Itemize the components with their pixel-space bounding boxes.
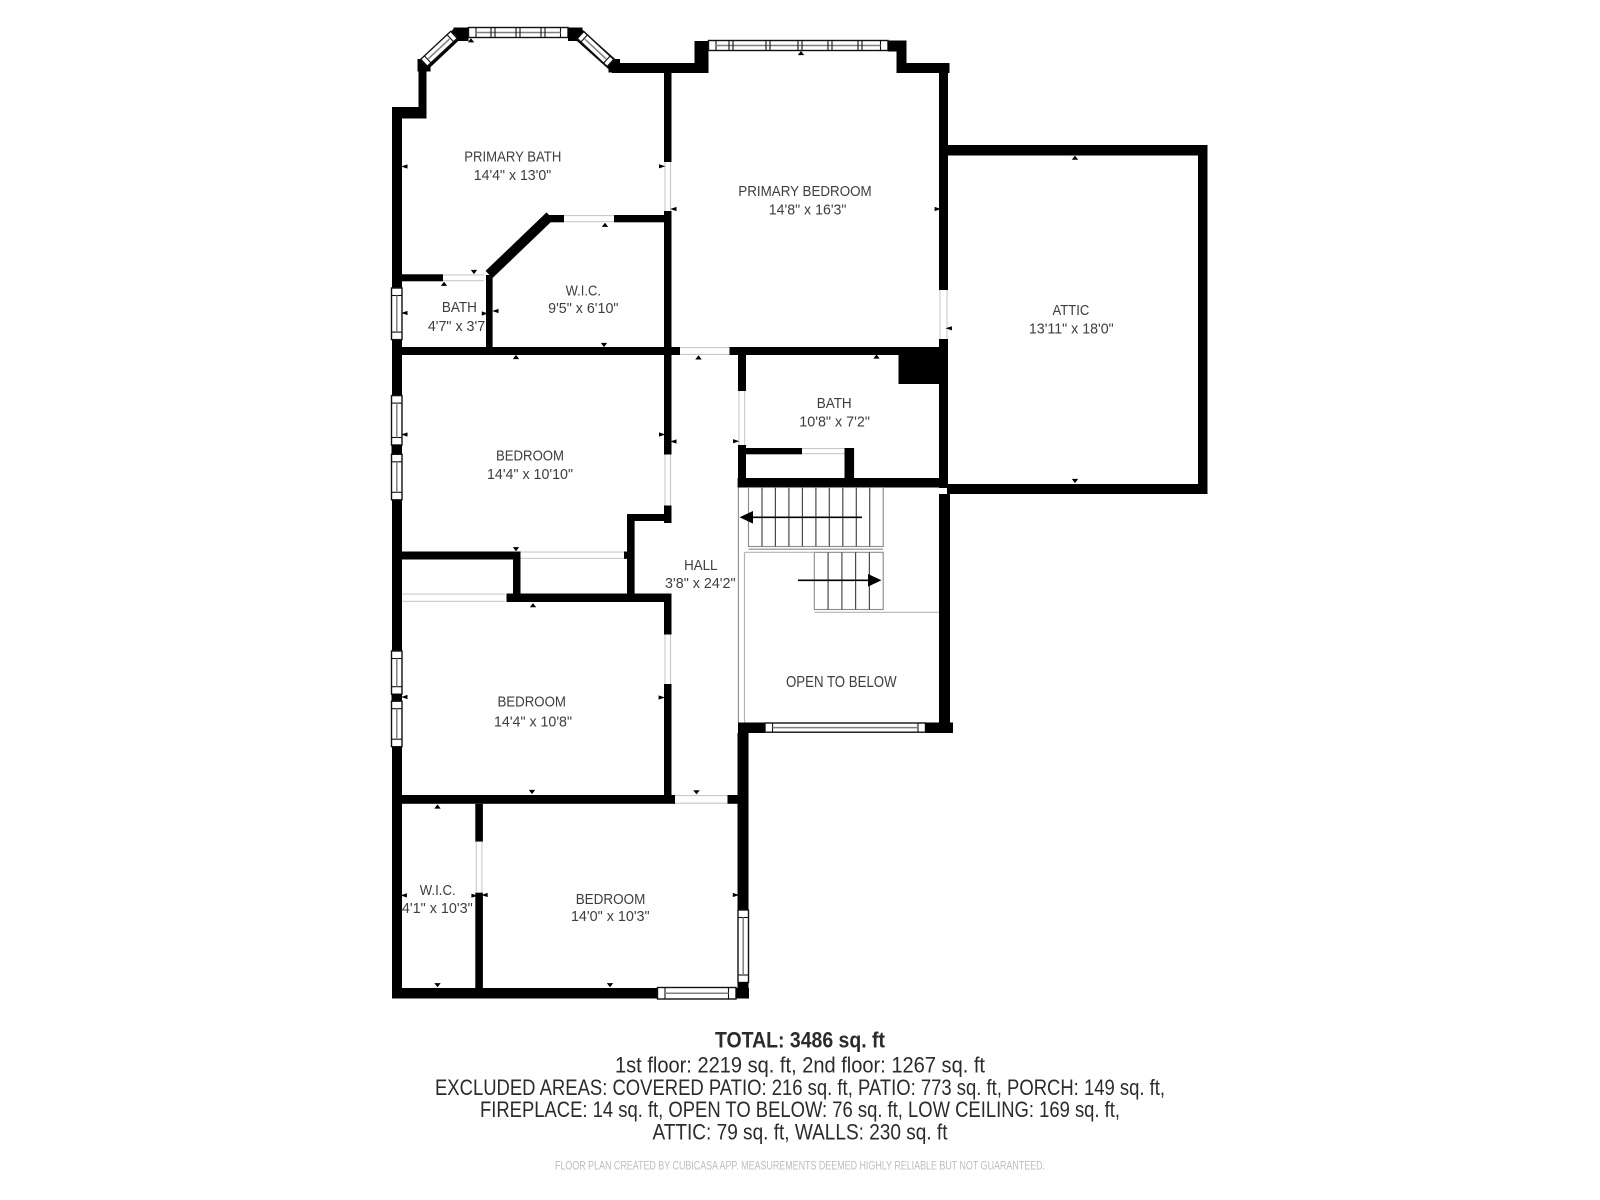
svg-text:14'4" x 10'8": 14'4" x 10'8" xyxy=(494,715,572,731)
svg-text:BATH: BATH xyxy=(442,300,477,316)
svg-text:FLOOR PLAN CREATED BY CUBICASA: FLOOR PLAN CREATED BY CUBICASA APP. MEAS… xyxy=(555,1160,1045,1172)
svg-text:OPEN TO BELOW: OPEN TO BELOW xyxy=(786,674,897,691)
svg-text:W.I.C.: W.I.C. xyxy=(420,883,456,899)
svg-text:14'0" x 10'3": 14'0" x 10'3" xyxy=(571,909,650,925)
svg-text:PRIMARY BATH: PRIMARY BATH xyxy=(464,150,561,166)
svg-text:BEDROOM: BEDROOM xyxy=(576,892,646,908)
svg-text:TOTAL: 3486 sq. ft: TOTAL: 3486 sq. ft xyxy=(715,1028,886,1053)
svg-text:3'8" x 24'2": 3'8" x 24'2" xyxy=(665,576,736,592)
svg-text:W.I.C.: W.I.C. xyxy=(566,283,601,299)
svg-text:4'1" x 10'3": 4'1" x 10'3" xyxy=(402,901,473,917)
svg-text:13'11" x 18'0": 13'11" x 18'0" xyxy=(1029,322,1114,338)
svg-text:ATTIC: 79 sq. ft, WALLS: 230 s: ATTIC: 79 sq. ft, WALLS: 230 sq. ft xyxy=(653,1120,948,1145)
svg-text:14'4" x 10'10": 14'4" x 10'10" xyxy=(487,467,573,483)
svg-text:ATTIC: ATTIC xyxy=(1053,303,1090,319)
svg-text:9'5" x 6'10": 9'5" x 6'10" xyxy=(548,301,618,317)
svg-text:14'8" x 16'3": 14'8" x 16'3" xyxy=(769,202,847,218)
svg-text:BEDROOM: BEDROOM xyxy=(497,695,566,711)
svg-text:FIREPLACE: 14 sq. ft, OPEN TO: FIREPLACE: 14 sq. ft, OPEN TO BELOW: 76 … xyxy=(480,1097,1120,1122)
svg-text:14'4" x 13'0": 14'4" x 13'0" xyxy=(474,168,552,184)
svg-text:BATH: BATH xyxy=(817,396,852,412)
svg-text:10'8" x 7'2": 10'8" x 7'2" xyxy=(799,415,870,431)
svg-text:4'7" x 3'7: 4'7" x 3'7 xyxy=(428,319,485,335)
svg-text:BEDROOM: BEDROOM xyxy=(496,449,564,465)
svg-text:HALL: HALL xyxy=(684,558,717,574)
svg-text:PRIMARY BEDROOM: PRIMARY BEDROOM xyxy=(738,184,871,200)
svg-text:1st floor: 2219 sq. ft, 2nd fl: 1st floor: 2219 sq. ft, 2nd floor: 1267 … xyxy=(615,1053,985,1078)
